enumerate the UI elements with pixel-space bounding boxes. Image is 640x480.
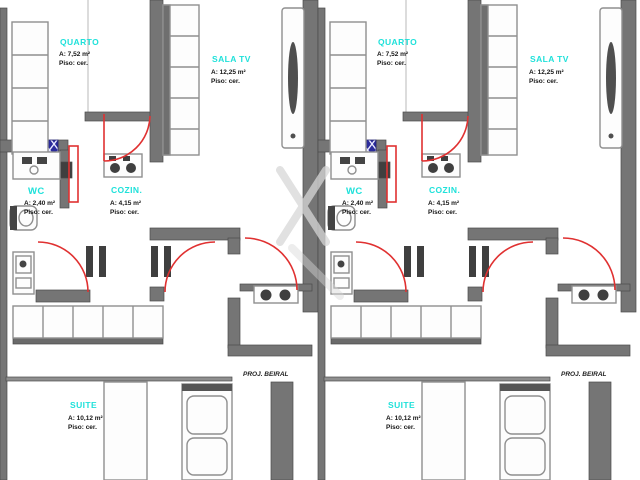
wall-segment [228,238,240,254]
unit: QUARTO A: 7,52 m² Piso: cer. SALA TV A: … [0,0,318,480]
sofa [282,8,304,148]
bed [182,384,232,480]
plant-icon [288,42,298,114]
room-floor: Piso: cer. [110,209,139,216]
sink-cabinet [13,252,34,294]
room-label-suite: SUITE [70,400,97,410]
room-area: A: 4,15 m² [110,200,142,207]
room-floor: Piso: cer. [59,60,88,67]
room-label-wc: WC [28,186,45,197]
room-floor: Piso: cer. [68,424,97,431]
room-label-quarto: QUARTO [60,37,99,47]
wall-segment [36,290,90,302]
suite-wardrobe [104,382,147,480]
wall-segment [0,140,12,152]
wardrobe [12,22,48,154]
wall-segment [150,287,164,301]
room-area: A: 12,25 m² [211,69,247,76]
wall-segment [0,8,7,480]
floorplan-drawing: QUARTO A: 7,52 m² Piso: cer. SALA TV A: … [0,0,640,480]
room-floor: Piso: cer. [24,209,53,216]
wall-segment [60,150,69,208]
tv-rack [163,5,199,155]
floorplan-canvas: QUARTO A: 7,52 m² Piso: cer. SALA TV A: … [0,0,640,480]
wall-segment [6,377,232,381]
unit-b [318,0,636,480]
eave-annotation: PROJ. BEIRAL [243,371,289,378]
room-label-cozinha: COZIN. [111,185,142,195]
room-area: A: 2,40 m² [24,200,56,207]
wall-segment [85,112,151,121]
door-arc [38,242,88,292]
room-floor: Piso: cer. [211,78,240,85]
patio-cooktop-icon [254,286,298,303]
wall-segment [228,345,312,356]
wall-segment [150,228,240,240]
door-arc [165,242,215,292]
headboard [182,384,232,391]
room-label-sala-tv: SALA TV [212,54,251,64]
room-area: A: 10,12 m² [68,415,104,422]
wall-segment [271,382,293,480]
room-area: A: 7,52 m² [59,51,91,58]
wc-sink [13,152,60,179]
wall-segment [228,298,240,348]
kitchen-counter [13,306,163,338]
door-leaves [86,246,171,277]
wall-segment [150,0,163,162]
